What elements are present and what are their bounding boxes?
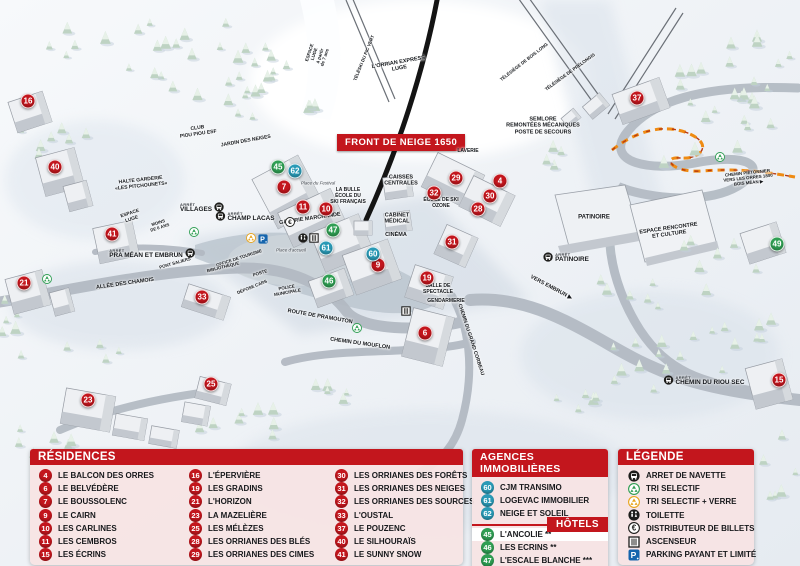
map-label-18: CINÉMA — [385, 232, 407, 238]
item-label: LES ÉCRINS — [58, 550, 106, 559]
residence-item-30: 30LES ORRIANES DES FORÊTS — [326, 469, 463, 482]
badge-4: 4 — [39, 469, 52, 482]
map-marker-7: 7 — [277, 180, 292, 195]
legende-list: ARRET DE NAVETTETRI SELECTIFTRI SELECTIF… — [618, 465, 754, 565]
residence-item-25: 25LES MÉLÈZES — [180, 522, 326, 535]
residence-item-6: 6LE BELVÉDÈRE — [30, 482, 180, 495]
map-label-21: POSTE — [252, 268, 268, 278]
badge-30: 30 — [335, 469, 348, 482]
map-label-4: TÉLÉSIÈGE DE PRÉLONGIS — [544, 52, 596, 92]
badge-32: 32 — [335, 495, 348, 508]
map-marker-60: 60 — [366, 247, 381, 262]
map-label-28: CHEMIN DU MOUFLON — [330, 337, 391, 352]
item-label: CJM TRANSIMO — [500, 483, 562, 492]
resort-village-map: FRONT DE NEIGE 1650 ESPACE LUGE à partir… — [0, 0, 800, 566]
item-label: LES ECRINS ** — [500, 543, 556, 552]
map-label-5: SEMLORE REMONTÉES MÉCANIQUES POSTE DE SE… — [506, 116, 580, 135]
residence-item-19: 19LES GRADINS — [180, 482, 326, 495]
bus-stop-pra-m-an-et-embrun: ARRÊTPRA MÉAN ET EMBRUN — [109, 245, 195, 263]
item-label: LES ORRIANES DES FORÊTS — [354, 471, 467, 480]
badge-19: 19 — [189, 482, 202, 495]
map-label-9: ESPACE LUGE — [120, 209, 142, 226]
map-marker-32: 32 — [427, 186, 442, 201]
map-label-11: LAVERIE — [457, 149, 478, 155]
badge-62: 62 — [481, 507, 494, 520]
agence-item-61: 61LOGEVAC IMMOBILIER — [472, 494, 608, 507]
item-label: LES CEMBROS — [58, 537, 117, 546]
badge-21: 21 — [189, 495, 202, 508]
recycle-green-icon — [352, 323, 362, 333]
map-marker-30: 30 — [483, 189, 498, 204]
parking-icon: P — [627, 548, 640, 561]
residence-item-40: 40LE SILHOURAÏS — [326, 535, 463, 548]
panel-legende-title: LÉGENDE — [618, 449, 754, 465]
panel-agences-title: AGENCES IMMOBILIÈRES — [472, 449, 608, 477]
recycle-yellow-icon — [246, 233, 256, 243]
map-label-6: CLUB PIOU PIOU ESF — [179, 124, 217, 141]
residence-item-7: 7LE BOUSSOLENC — [30, 495, 180, 508]
map-marker-4: 4 — [493, 174, 508, 189]
map-label-16: ÉCOLE DE SKI OZONE — [423, 198, 458, 210]
map-label-23: POLICE MUNICIPALE — [273, 283, 301, 298]
item-label: L'ÉPERVIÈRE — [208, 471, 260, 480]
map-label-31: GENDARMERIE — [427, 299, 465, 305]
badge-23: 23 — [189, 509, 202, 522]
bus-stop-label: ARRÊTPRA MÉAN ET EMBRUN — [109, 249, 183, 259]
item-label: LE BOUSSOLENC — [58, 497, 127, 506]
badge-11: 11 — [39, 535, 52, 548]
map-marker-40: 40 — [48, 160, 63, 175]
map-label-24: Place d'accueil — [276, 247, 306, 252]
badge-16: 16 — [189, 469, 202, 482]
map-label-25: ALLÉE DES CHAMOIS — [96, 277, 155, 292]
map-marker-31: 31 — [445, 235, 460, 250]
map-marker-21: 21 — [17, 276, 32, 291]
map-marker-11: 11 — [296, 200, 311, 215]
badge-47: 47 — [481, 554, 494, 566]
residence-item-9: 9LE CAIRN — [30, 509, 180, 522]
residences-column-3: 30LES ORRIANES DES FORÊTS31LES ORRIANES … — [326, 469, 463, 561]
panel-residences: RÉSIDENCES 4LE BALCON DES ORRES6LE BELVÉ… — [30, 449, 463, 565]
bus-stop-label: ARRÊTCHAMP LACAS — [227, 212, 274, 222]
legende-item-parking: PPARKING PAYANT ET LIMITÉ — [618, 548, 754, 561]
residence-item-33: 33L'OUSTAL — [326, 509, 463, 522]
agences-hotels-list: 60CJM TRANSIMO61LOGEVAC IMMOBILIER62NEIG… — [472, 477, 608, 566]
bus-icon — [185, 245, 195, 263]
badge-33: 33 — [335, 509, 348, 522]
residences-list: 4LE BALCON DES ORRES6LE BELVÉDÈRE7LE BOU… — [30, 465, 463, 565]
panel-residences-title: RÉSIDENCES — [30, 449, 463, 465]
item-label: LES ORRIANES DES SOURCES — [354, 497, 474, 506]
residence-item-15: 15LES ÉCRINS — [30, 548, 180, 561]
legende-label: TRI SELECTIF — [646, 484, 700, 493]
legende-label: PARKING PAYANT ET LIMITÉ — [646, 550, 756, 559]
euro-icon: € — [285, 217, 295, 227]
item-label: LES GRADINS — [208, 484, 263, 493]
badge-15: 15 — [39, 548, 52, 561]
recycle-green-icon — [715, 152, 725, 162]
map-marker-33: 33 — [195, 290, 210, 305]
bus-stop-patinoire: ARRÊTPATINOIRE — [543, 249, 589, 267]
map-label-14: Place du Festival — [301, 180, 335, 185]
hotels-tab: HÔTELS — [547, 517, 608, 532]
bus-icon — [627, 469, 640, 482]
map-marker-47: 47 — [326, 223, 341, 238]
map-label-1: TÉLÉSKI DU PIC VERT — [352, 34, 375, 81]
front-de-neige-banner: FRONT DE NEIGE 1650 — [337, 134, 465, 151]
wc-icon — [298, 233, 308, 243]
badge-41: 41 — [335, 548, 348, 561]
svg-text:€: € — [631, 524, 636, 533]
legende-item-recycle-green: TRI SELECTIF — [618, 482, 754, 495]
item-label: LA MAZELIÈRE — [208, 511, 267, 520]
map-label-7: JARDIN DES NEIGES — [221, 135, 272, 150]
elevator-icon — [401, 306, 411, 316]
map-marker-10: 10 — [319, 202, 334, 217]
euro-icon: € — [627, 522, 640, 535]
item-label: LE SUNNY SNOW — [354, 550, 421, 559]
map-marker-19: 19 — [420, 271, 435, 286]
map-label-13: LA BULLE ÉCOLE DU SKI FRANÇAIS — [330, 188, 366, 206]
bus-icon — [543, 249, 553, 267]
map-label-0: ESPACE LUGE à partir de 7 ans — [304, 43, 330, 67]
item-label: L'ANCOLIE ** — [500, 530, 551, 539]
item-label: LES MÉLÈZES — [208, 524, 264, 533]
badge-6: 6 — [39, 482, 52, 495]
residences-column-1: 4LE BALCON DES ORRES6LE BELVÉDÈRE7LE BOU… — [30, 469, 180, 561]
item-label: LE BALCON DES ORRES — [58, 471, 154, 480]
legende-label: DISTRIBUTEUR DE BILLETS — [646, 524, 754, 533]
legende-label: ARRET DE NAVETTE — [646, 471, 726, 480]
hotel-item-47: 47L'ESCALE BLANCHE *** — [472, 554, 608, 566]
recycle-green-icon — [189, 227, 199, 237]
badge-37: 37 — [335, 522, 348, 535]
panel-agences: AGENCES IMMOBILIÈRES 60CJM TRANSIMO61LOG… — [472, 449, 608, 566]
recycle-green-icon — [42, 274, 52, 284]
item-label: LES CARLINES — [58, 524, 117, 533]
badge-29: 29 — [189, 548, 202, 561]
map-label-17: CABINET MÉDICAL — [384, 213, 409, 226]
map-marker-28: 28 — [471, 202, 486, 217]
item-label: LES ORRIANES DES NEIGES — [354, 484, 465, 493]
svg-text:P: P — [260, 236, 265, 244]
map-label-3: TÉLÉSIÈGE DE BOIS LONG — [499, 42, 549, 83]
map-label-33: ESPACE RENCONTRE ET CULTURE — [639, 222, 699, 243]
map-marker-46: 46 — [322, 274, 337, 289]
item-label: LE BELVÉDÈRE — [58, 484, 119, 493]
elevator-icon — [309, 233, 319, 243]
residence-item-31: 31LES ORRIANES DES NEIGES — [326, 482, 463, 495]
legende-item-wc: TOILETTE — [618, 509, 754, 522]
residence-item-4: 4LE BALCON DES ORRES — [30, 469, 180, 482]
map-label-34: VERS EMBRUN ▶ — [529, 274, 573, 302]
residence-item-10: 10LES CARLINES — [30, 522, 180, 535]
bus-stop-label: ARRÊTPATINOIRE — [555, 253, 589, 263]
map-marker-37: 37 — [630, 91, 645, 106]
item-label: LES ORRIANES DES BLÉS — [208, 537, 310, 546]
legende-item-recycle-yellow: TRI SELECTIF + VERRE — [618, 495, 754, 508]
item-label: L'ESCALE BLANCHE *** — [500, 556, 592, 565]
legende-label: ASCENSEUR — [646, 537, 696, 546]
wc-icon — [627, 509, 640, 522]
map-marker-62: 62 — [288, 164, 303, 179]
map-label-2: L'ORRIAN EXPRESS LUGE — [371, 55, 426, 77]
agence-item-60: 60CJM TRANSIMO — [472, 481, 608, 494]
map-label-29: CHEMIN DU GRAND CORBEAU — [456, 304, 485, 377]
bus-stop-champ-lacas: ARRÊTCHAMP LACAS — [215, 208, 274, 226]
recycle-green-icon — [627, 482, 640, 495]
map-label-27: ROUTE DE PRAMOUTON — [287, 308, 353, 326]
residence-item-37: 37LE POUZENC — [326, 522, 463, 535]
residence-item-21: 21L'HORIZON — [180, 495, 326, 508]
legende-item-bus: ARRET DE NAVETTE — [618, 469, 754, 482]
item-label: LE POUZENC — [354, 524, 406, 533]
residence-item-32: 32LES ORRIANES DES SOURCES — [326, 495, 463, 508]
residence-item-23: 23LA MAZELIÈRE — [180, 509, 326, 522]
item-label: LOGEVAC IMMOBILIER — [500, 496, 589, 505]
badge-60: 60 — [481, 481, 494, 494]
bus-stop-label: ARRÊTVILLAGES — [180, 203, 212, 213]
bus-icon — [664, 372, 674, 390]
map-label-10: MOINS DE 6 ANS — [148, 217, 170, 233]
residence-item-29: 29LES ORRIANES DES CIMES — [180, 548, 326, 561]
map-marker-29: 29 — [449, 171, 464, 186]
badge-9: 9 — [39, 509, 52, 522]
map-marker-16: 16 — [21, 94, 36, 109]
map-label-8: HALTE GARDERIE «LES PITCHOUNETS» — [114, 175, 167, 192]
panel-legende: LÉGENDE ARRET DE NAVETTETRI SELECTIFTRI … — [618, 449, 754, 565]
item-label: LE CAIRN — [58, 511, 96, 520]
item-label: LE SILHOURAÏS — [354, 537, 416, 546]
legende-label: TOILETTE — [646, 511, 685, 520]
map-label-32: PATINOIRE — [578, 214, 610, 221]
map-marker-61: 61 — [319, 241, 334, 256]
map-marker-45: 45 — [271, 160, 286, 175]
badge-25: 25 — [189, 522, 202, 535]
residence-item-11: 11LES CEMBROS — [30, 535, 180, 548]
badge-46: 46 — [481, 541, 494, 554]
svg-text:€: € — [288, 219, 292, 226]
item-label: LES ORRIANES DES CIMES — [208, 550, 314, 559]
badge-7: 7 — [39, 495, 52, 508]
badge-61: 61 — [481, 494, 494, 507]
item-label: L'OUSTAL — [354, 511, 393, 520]
map-label-35: CHEMIN PIÉTONNIER VERS LES ORRES 1800 BO… — [723, 168, 774, 189]
badge-31: 31 — [335, 482, 348, 495]
parking-icon: P — [258, 234, 268, 244]
elevator-icon — [627, 535, 640, 548]
map-marker-23: 23 — [81, 393, 96, 408]
map-marker-49: 49 — [770, 237, 785, 252]
bus-stop-label: ARRÊTCHEMIN DU RIOU SEC — [676, 376, 745, 386]
map-label-30: SALLE DE SPECTACLE — [423, 284, 453, 296]
residence-item-41: 41LE SUNNY SNOW — [326, 548, 463, 561]
bus-icon — [215, 208, 225, 226]
map-marker-15: 15 — [772, 373, 787, 388]
recycle-yellow-icon — [627, 495, 640, 508]
residences-column-2: 16L'ÉPERVIÈRE19LES GRADINS21L'HORIZON23L… — [180, 469, 326, 561]
bus-stop-chemin-du-riou-sec: ARRÊTCHEMIN DU RIOU SEC — [664, 372, 745, 390]
badge-28: 28 — [189, 535, 202, 548]
hotels-divider: HÔTELS — [472, 524, 608, 526]
map-label-22: DÉPOSE CARS — [236, 279, 268, 296]
residence-item-16: 16L'ÉPERVIÈRE — [180, 469, 326, 482]
badge-10: 10 — [39, 522, 52, 535]
svg-text:P: P — [630, 550, 636, 560]
legende-item-elevator: ASCENSEUR — [618, 535, 754, 548]
map-marker-41: 41 — [105, 227, 120, 242]
badge-45: 45 — [481, 528, 494, 541]
hotel-item-46: 46LES ECRINS ** — [472, 541, 608, 554]
map-marker-25: 25 — [204, 377, 219, 392]
item-label: L'HORIZON — [208, 497, 252, 506]
map-marker-6: 6 — [418, 326, 433, 341]
legende-label: TRI SELECTIF + VERRE — [646, 497, 736, 506]
legende-item-euro: €DISTRIBUTEUR DE BILLETS — [618, 522, 754, 535]
residence-item-28: 28LES ORRIANES DES BLÉS — [180, 535, 326, 548]
map-label-12: CAISSES CENTRALES — [384, 175, 418, 188]
badge-40: 40 — [335, 535, 348, 548]
